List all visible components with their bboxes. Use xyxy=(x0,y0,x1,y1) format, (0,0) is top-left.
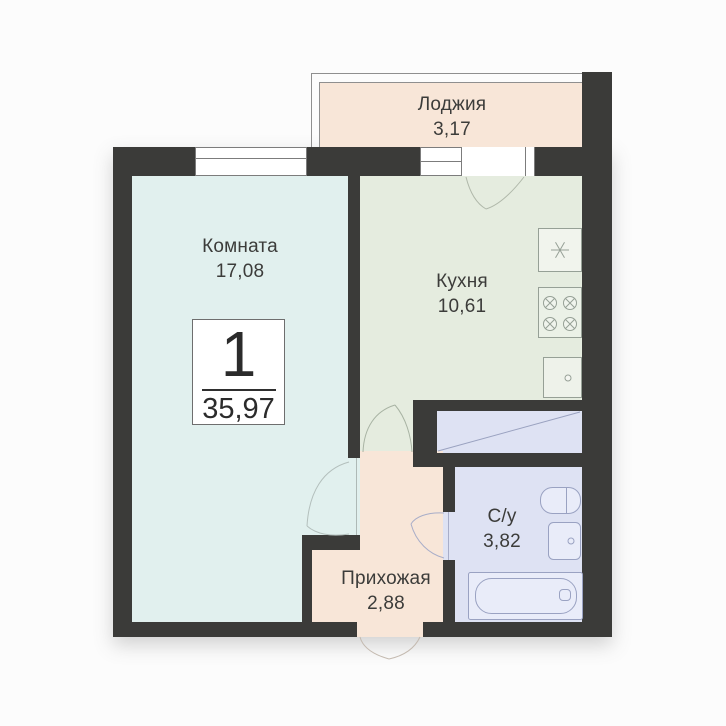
balcony-door-opening xyxy=(462,147,525,176)
living-room-door-opening xyxy=(348,458,360,535)
wall-left xyxy=(113,147,132,637)
room-name: Прихожая xyxy=(306,566,466,591)
hallway-label: Прихожая 2,88 xyxy=(306,566,466,616)
closet-area xyxy=(437,411,582,453)
apartment-summary-badge: 1 35,97 xyxy=(192,319,285,425)
kitchen-window xyxy=(420,147,462,176)
bathroom-label: С/у 3,82 xyxy=(422,504,582,554)
room-area: 3,82 xyxy=(422,529,582,554)
wall-room-kitchen xyxy=(348,176,360,458)
total-area: 35,97 xyxy=(193,394,284,424)
room-name: Лоджия xyxy=(372,92,532,117)
wall-right xyxy=(582,72,612,637)
loggia-label: Лоджия 3,17 xyxy=(372,92,532,142)
room-name: С/у xyxy=(422,504,582,529)
wall-top xyxy=(113,147,612,176)
room-area: 17,08 xyxy=(160,259,320,284)
room-name: Комната xyxy=(160,234,320,259)
wall-bathroom-top xyxy=(413,453,582,467)
living-room-label: Комната 17,08 xyxy=(160,234,320,284)
room-area: 3,17 xyxy=(372,117,532,142)
entry-door-opening xyxy=(357,622,423,637)
wall-room-step xyxy=(302,535,360,550)
kitchen-label: Кухня 10,61 xyxy=(382,269,542,319)
room-area: 10,61 xyxy=(382,294,542,319)
room-area: 2,88 xyxy=(306,591,466,616)
wall-kitchen-bottom xyxy=(437,400,582,411)
rooms-count: 1 xyxy=(193,322,284,386)
balcony-door-jamb xyxy=(525,147,535,176)
entry-door-swing xyxy=(360,637,420,659)
floor-plan: Лоджия 3,17 Комната 17,08 Кухня 10,61 С/… xyxy=(0,0,726,726)
living-room-window xyxy=(195,147,307,176)
room-name: Кухня xyxy=(382,269,542,294)
